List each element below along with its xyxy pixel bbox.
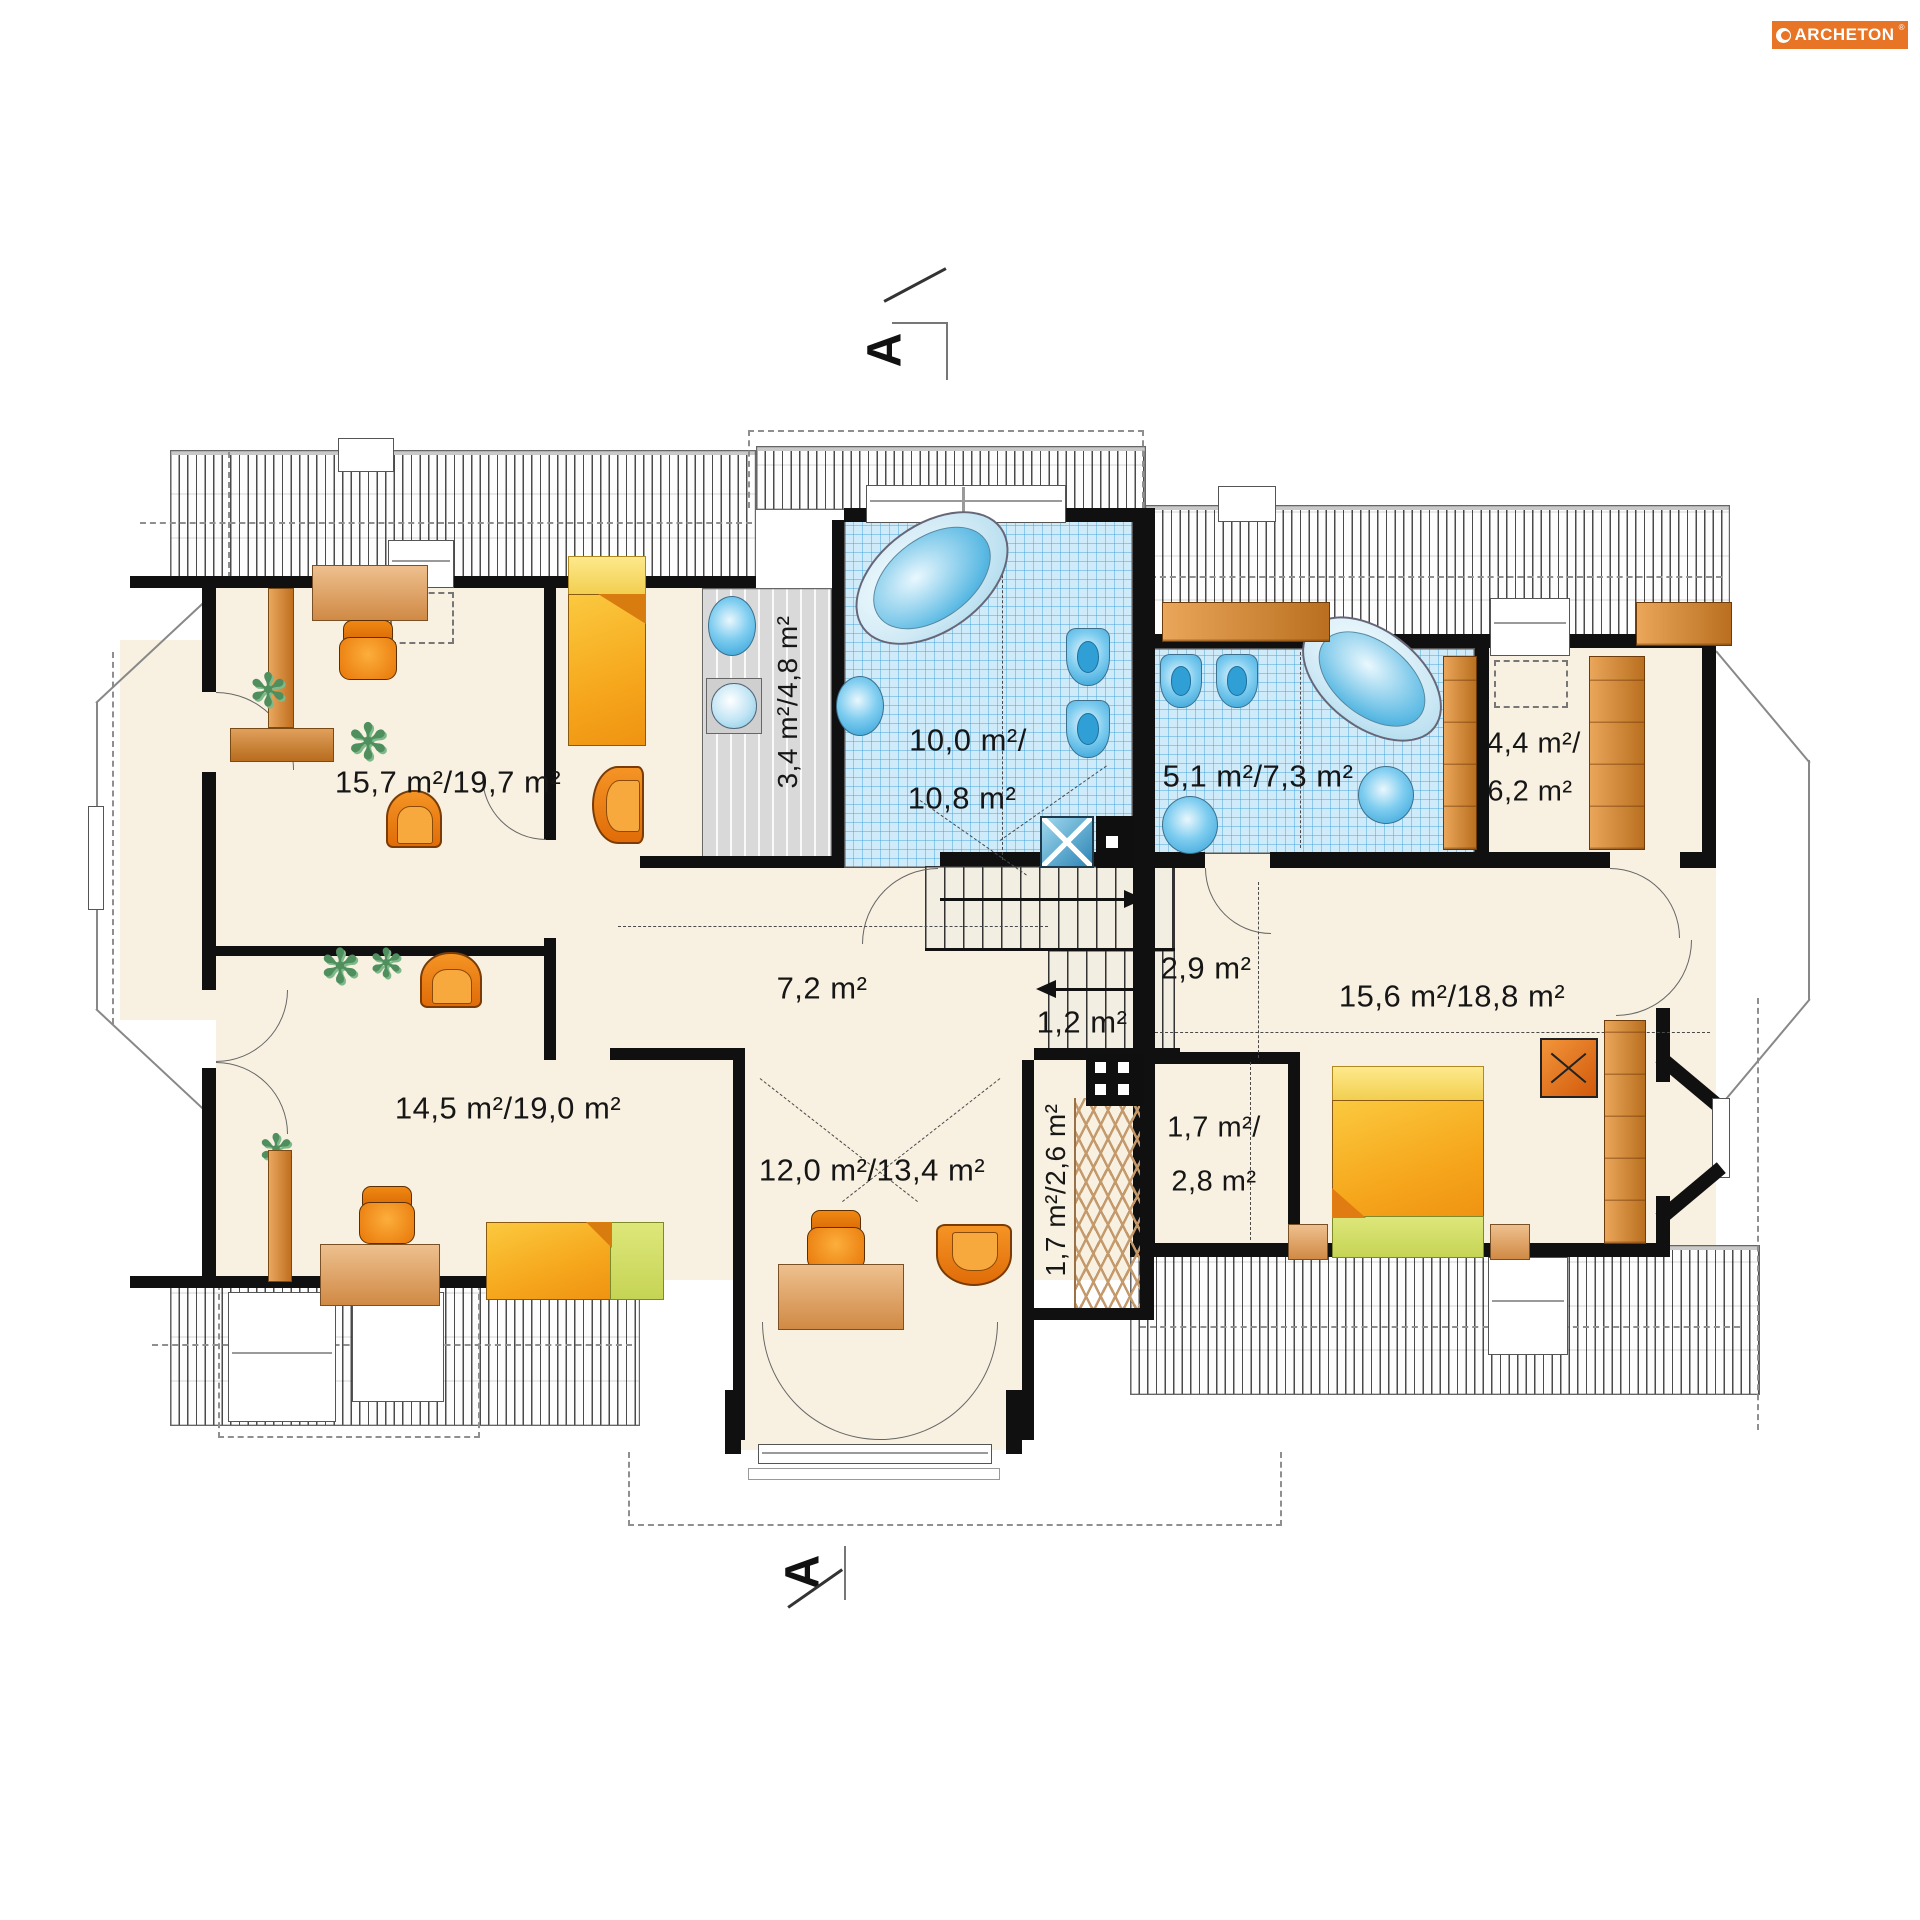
bed-fold bbox=[1332, 1188, 1366, 1218]
threshold-line bbox=[762, 1452, 988, 1454]
bed-fold bbox=[586, 1222, 612, 1248]
wardrobe bbox=[1162, 602, 1330, 642]
vent-duct bbox=[1118, 1084, 1129, 1095]
window-dormer-bottom-left-1 bbox=[228, 1292, 336, 1422]
section-marker-top: A bbox=[861, 333, 909, 368]
wall-bay bbox=[1656, 1196, 1670, 1254]
wardrobe bbox=[1443, 656, 1477, 850]
slope-line-closet-bedroom bbox=[1250, 1062, 1251, 1240]
bed-fold bbox=[598, 594, 646, 624]
section-line-bottom-v bbox=[844, 1546, 846, 1600]
washing-machine bbox=[706, 678, 762, 734]
closet-rail bbox=[1074, 1098, 1076, 1308]
vent-duct bbox=[1095, 1062, 1106, 1073]
wall bbox=[610, 1048, 745, 1060]
room-label-bottom-center: 12,0 m²/13,4 m² bbox=[759, 1153, 985, 1186]
wall bbox=[1006, 1390, 1022, 1454]
sideboard bbox=[230, 728, 334, 762]
washbasin bbox=[1358, 766, 1414, 824]
archeton-logo-icon bbox=[1776, 28, 1791, 43]
bed-pillow bbox=[568, 556, 646, 596]
registered-mark: ® bbox=[1899, 23, 1905, 32]
stairs-down-arrow-head bbox=[1036, 980, 1056, 998]
bidet bbox=[1216, 654, 1258, 708]
room-label-bath-right: 5,1 m²/7,3 m² bbox=[1163, 759, 1354, 792]
bidet bbox=[1066, 700, 1110, 758]
washbasin bbox=[836, 676, 884, 736]
office-chair-seat bbox=[339, 637, 397, 680]
section-tick-top bbox=[883, 267, 946, 302]
roof-left-top bbox=[170, 450, 756, 583]
eave-dashed-left-v bbox=[228, 452, 230, 578]
bed-blanket bbox=[610, 1222, 664, 1300]
armchair-cushion bbox=[606, 780, 640, 832]
armchair-cushion bbox=[432, 969, 471, 1004]
wall bbox=[733, 1060, 745, 1440]
vent-duct bbox=[1118, 1062, 1129, 1073]
shower bbox=[1040, 816, 1094, 868]
window-line bbox=[1494, 622, 1566, 624]
armchair bbox=[420, 952, 482, 1008]
laundry-sink bbox=[708, 596, 756, 656]
room-label-bath-main-1: 10,0 m²/ bbox=[909, 723, 1027, 756]
armchair-cushion bbox=[397, 806, 432, 844]
window-dormer-bottom-left-2 bbox=[352, 1292, 444, 1402]
toilet-bowl bbox=[1171, 666, 1192, 695]
plant: ✻ bbox=[369, 944, 403, 984]
window-closet-right bbox=[1490, 598, 1570, 656]
wall bbox=[1022, 1060, 1034, 1440]
armchair bbox=[592, 766, 644, 844]
desk bbox=[312, 565, 428, 621]
wall bbox=[1133, 880, 1155, 1060]
office-chair-seat bbox=[359, 1202, 415, 1243]
chimney-outline-right-roof bbox=[1218, 486, 1276, 522]
washbasin bbox=[1162, 796, 1218, 854]
left-bay-slope-bottom bbox=[95, 1008, 214, 1119]
wall bbox=[202, 588, 216, 692]
plant: ✻ bbox=[347, 717, 389, 767]
armchair-cushion bbox=[952, 1232, 997, 1271]
toilet bbox=[1066, 628, 1110, 686]
room-label-landing: 2,9 m² bbox=[1161, 951, 1252, 984]
window-line bbox=[232, 1352, 332, 1354]
window-line bbox=[1492, 1300, 1564, 1302]
wall bbox=[544, 938, 556, 1060]
balcony-step bbox=[748, 1468, 1000, 1480]
vent-duct bbox=[1095, 1084, 1106, 1095]
roof-right-bottom bbox=[1130, 1245, 1760, 1395]
eave-dashed-right-bottom bbox=[1140, 1326, 1740, 1328]
section-line-top-v bbox=[946, 322, 948, 380]
vent-shaft bbox=[1086, 1054, 1144, 1106]
vent-duct bbox=[1106, 836, 1118, 848]
wall bbox=[1145, 852, 1205, 868]
plant: ✻ bbox=[320, 944, 360, 992]
slope-line-landing bbox=[1258, 882, 1259, 1058]
section-line-top-h bbox=[892, 322, 948, 324]
room-label-closet-right-1: 4,4 m²/ bbox=[1487, 728, 1581, 759]
armchair bbox=[936, 1224, 1012, 1286]
bidet-bowl bbox=[1227, 666, 1248, 695]
wall bbox=[640, 856, 832, 868]
room-label-bedroom-right: 15,6 m²/18,8 m² bbox=[1339, 979, 1565, 1012]
wall bbox=[725, 1390, 741, 1454]
tall-wardrobe bbox=[1604, 1020, 1646, 1244]
wall bbox=[202, 772, 216, 990]
room-label-wardrobe-center: 1,7 m²/2,6 m² bbox=[1041, 1104, 1071, 1277]
room-label-closet-right-2: 6,2 m² bbox=[1487, 776, 1572, 807]
closet-hangers bbox=[1076, 1098, 1140, 1308]
room-label-top-left: 15,7 m²/19,7 m² bbox=[335, 765, 561, 798]
wardrobe bbox=[1589, 656, 1645, 850]
archeton-logo-text: ARCHETON bbox=[1795, 25, 1895, 45]
toilet bbox=[1160, 654, 1202, 708]
right-gable-slope-top bbox=[1715, 650, 1810, 763]
square-table bbox=[1540, 1038, 1598, 1098]
eave-dashed-left-top bbox=[140, 522, 752, 524]
room-label-bottom-left: 14,5 m²/19,0 m² bbox=[395, 1091, 621, 1124]
window-dormer-right-bottom bbox=[1488, 1257, 1568, 1355]
right-gable-wall-line bbox=[1808, 760, 1810, 1000]
left-bay-window bbox=[88, 806, 104, 910]
floor-plan-canvas: ARCHETON ® A A bbox=[0, 0, 1920, 1920]
wall bbox=[202, 1068, 216, 1280]
wall bbox=[1133, 508, 1155, 880]
nightstand bbox=[1288, 1224, 1328, 1260]
nightstand bbox=[1490, 1224, 1530, 1260]
office-chair bbox=[338, 620, 396, 680]
room-label-closet-bedroom-1: 1,7 m²/ bbox=[1167, 1112, 1261, 1143]
window-line bbox=[392, 560, 450, 562]
skylight-dashed-closet bbox=[1494, 660, 1568, 708]
room-label-under-stairs: 1,2 m² bbox=[1037, 1005, 1128, 1038]
window-line bbox=[870, 500, 1062, 502]
office-chair bbox=[358, 1186, 414, 1244]
bed-pillow bbox=[1332, 1066, 1484, 1102]
slope-line-hall bbox=[618, 926, 1048, 927]
eave-dashed-right-top bbox=[1150, 576, 1722, 578]
plant: ✻ bbox=[249, 667, 288, 713]
toilet-bowl bbox=[1077, 641, 1099, 672]
room-label-bath-main-2: 10,8 m² bbox=[908, 781, 1017, 814]
stairs-up-arrow-line bbox=[940, 898, 1126, 901]
slope-line-bath-right bbox=[1300, 652, 1301, 848]
wardrobe bbox=[1636, 602, 1732, 646]
right-gable-slope-bottom bbox=[1715, 999, 1810, 1112]
archeton-logo: ARCHETON ® bbox=[1772, 21, 1908, 49]
vent-shaft bbox=[1096, 816, 1134, 868]
chimney-outline-left-roof bbox=[338, 438, 394, 472]
desk bbox=[320, 1244, 440, 1306]
balcony-threshold bbox=[758, 1444, 992, 1464]
desk bbox=[778, 1264, 904, 1330]
wall bbox=[1270, 852, 1610, 868]
washing-machine-drum bbox=[711, 683, 756, 728]
eave-dashed-left-bay bbox=[112, 652, 114, 1024]
bidet-bowl bbox=[1077, 713, 1099, 744]
room-label-hall: 7,2 m² bbox=[777, 971, 868, 1004]
bed-blanket bbox=[1332, 1216, 1484, 1258]
office-chair bbox=[806, 1210, 864, 1270]
wall bbox=[1702, 634, 1716, 868]
bookshelf bbox=[268, 1150, 292, 1282]
wall bbox=[1034, 1308, 1154, 1320]
room-label-laundry: 3,4 m²/4,8 m² bbox=[773, 616, 803, 789]
room-label-closet-bedroom-2: 2,8 m² bbox=[1171, 1166, 1256, 1197]
